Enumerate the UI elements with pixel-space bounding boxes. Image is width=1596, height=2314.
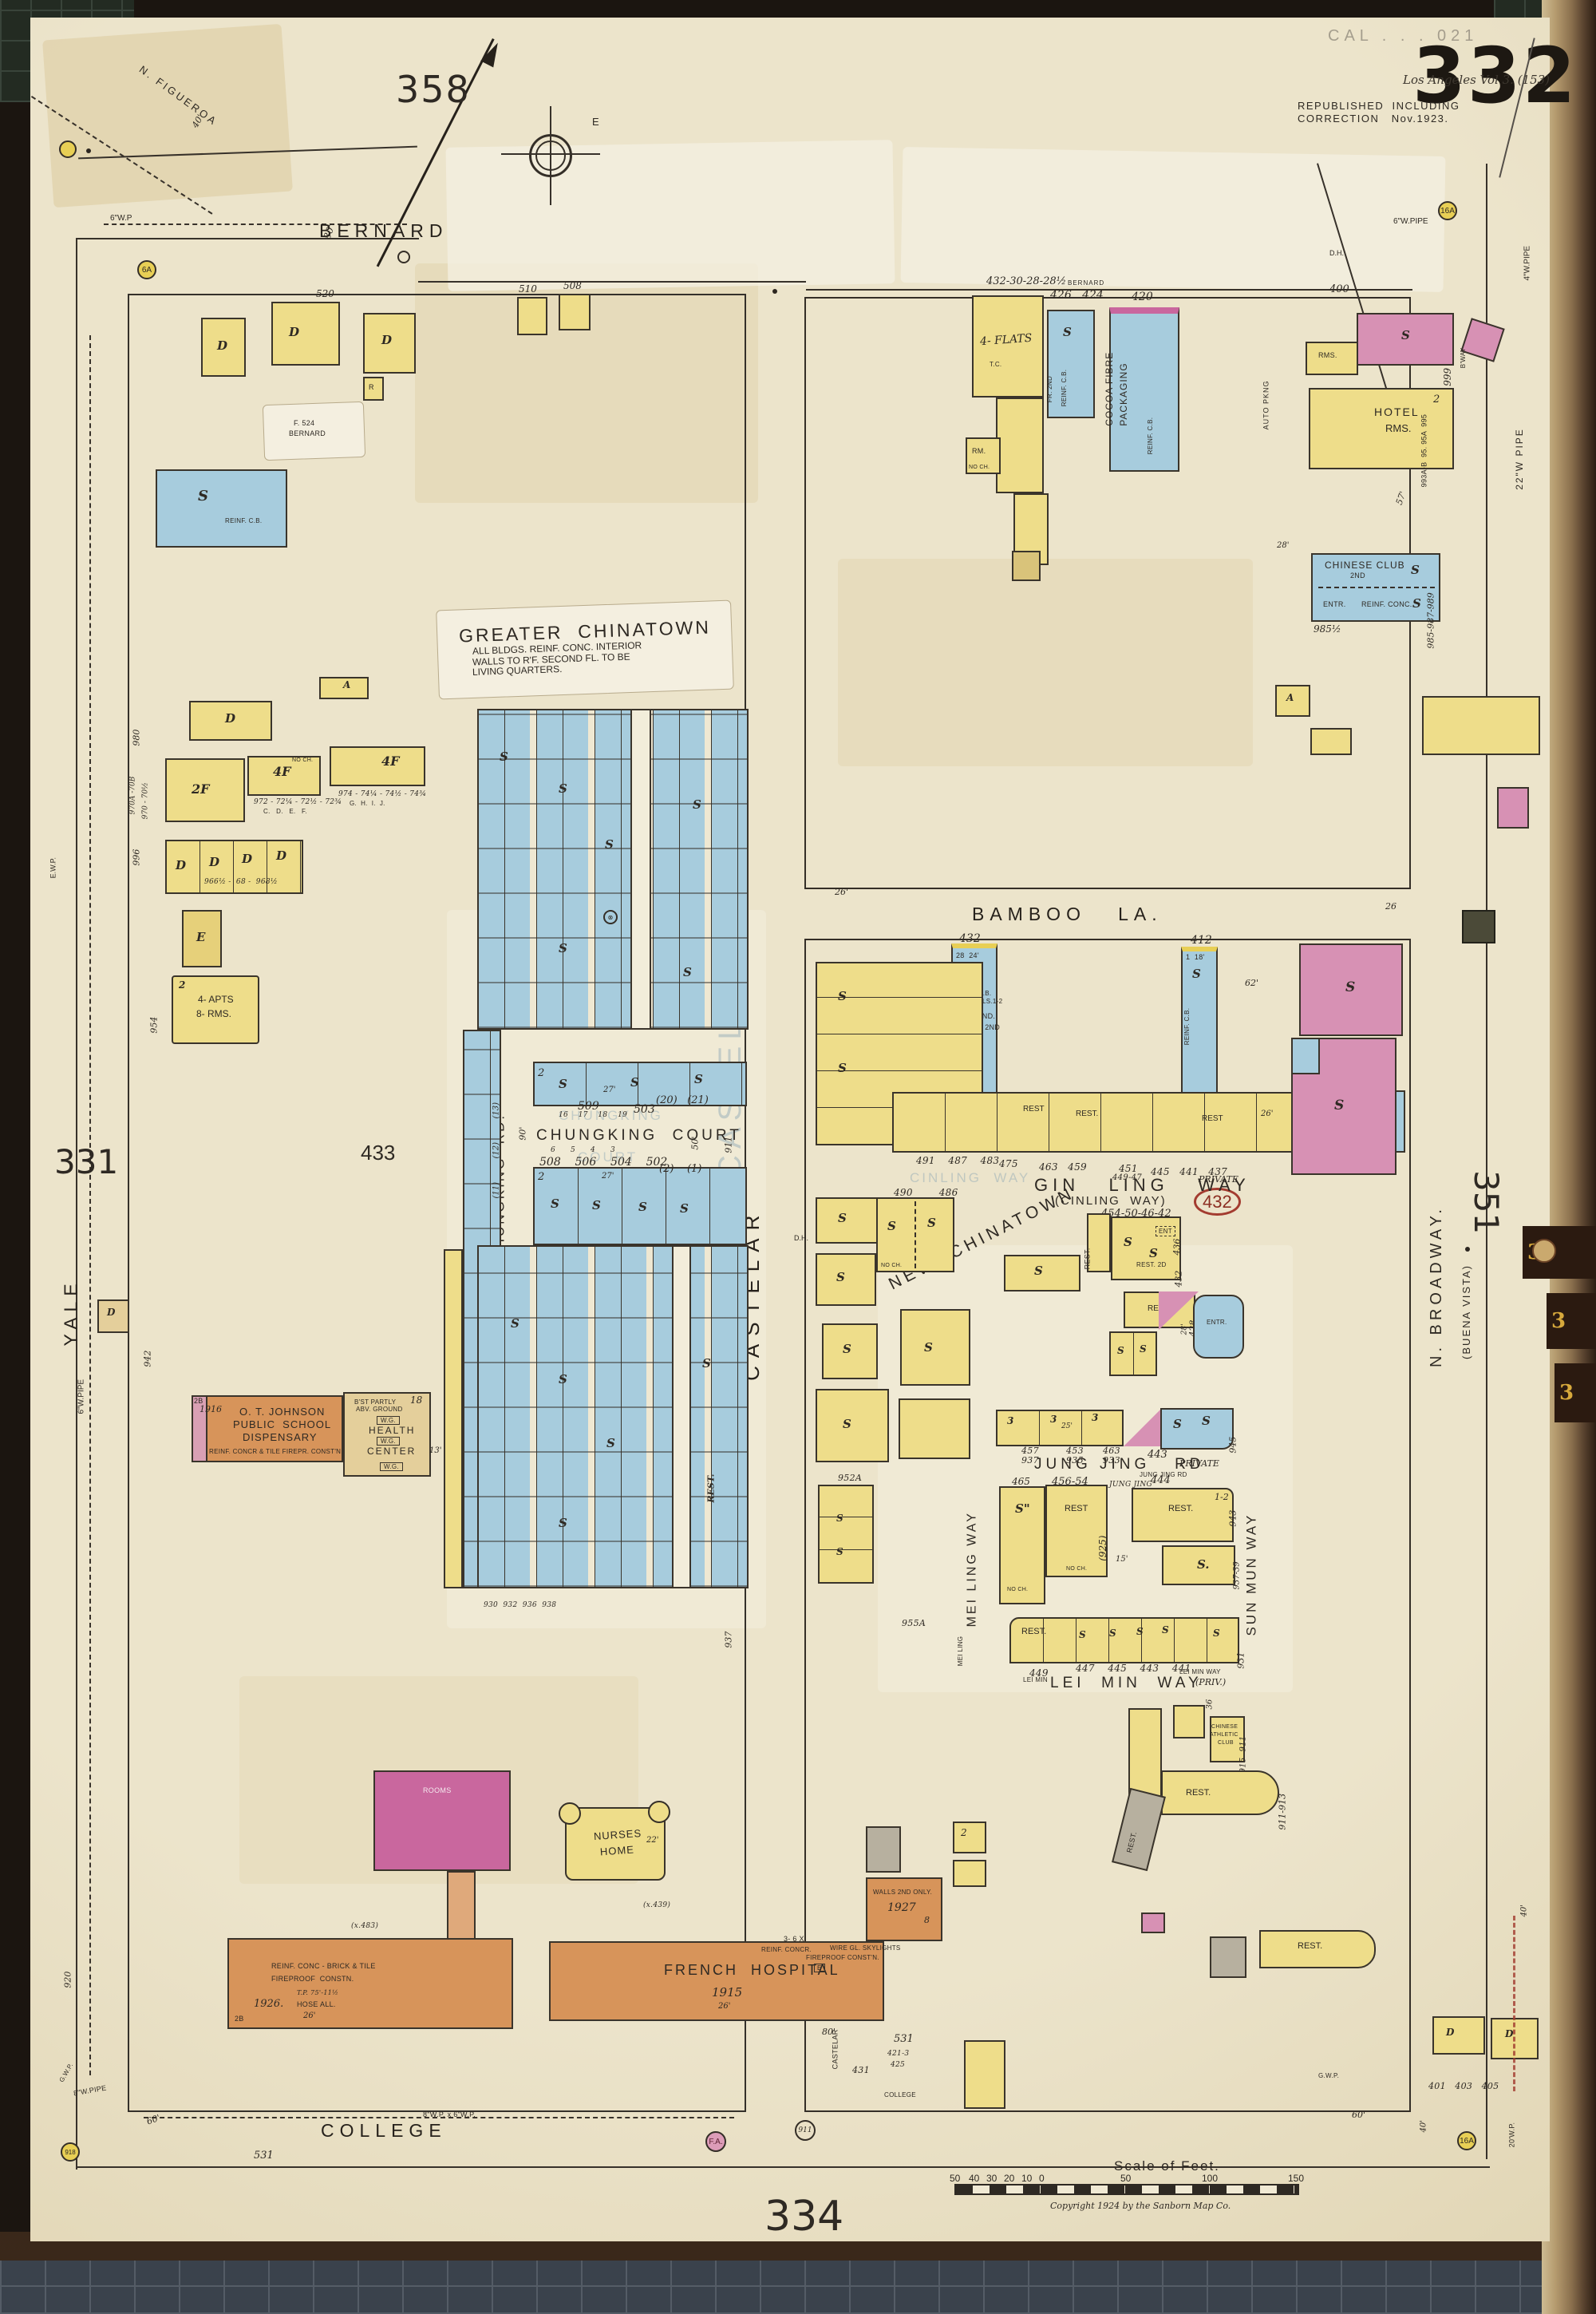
store-mark: S (559, 1517, 567, 1530)
cocoa-fibre-label2: PACKAGING (1119, 362, 1130, 425)
store-mark: S (198, 489, 208, 505)
fh-constr-2: FIREPROOF CONSTN. (271, 1975, 354, 1983)
dwelling-mark: D (381, 334, 392, 347)
street-broadway-alt: (BUENA VISTA) (1461, 1264, 1473, 1359)
yale-number: 970 - 70½ (142, 782, 150, 819)
court-number: 503 (634, 1103, 655, 1116)
three-mark: 3 (1050, 1414, 1057, 1426)
annex-1927-label: 1927 (887, 1901, 916, 1914)
scale-tick: 40 (969, 2173, 979, 2184)
addr-420: 420 (1132, 291, 1153, 303)
fh-tp: T.P. 75'-11½ (297, 1989, 338, 1996)
alley-gap-lower (672, 1247, 691, 1587)
dwelling-mark: D (176, 859, 186, 872)
bamboo-412-number: 412 (1191, 934, 1212, 947)
jj-925: (925) (1098, 1536, 1109, 1561)
jj-443: 443 (1148, 1450, 1167, 1462)
edge-tab-number: 3 (1551, 1309, 1566, 1333)
fh-26b: 26' (718, 2002, 730, 2011)
long-building (1422, 696, 1540, 755)
store-mark: S (702, 1357, 711, 1371)
store-mark: S (1334, 1098, 1344, 1114)
castelar-number-937: 937 (724, 1632, 734, 1648)
street-chungking-court: CHUNGKING COURT (536, 1127, 742, 1145)
fh-hose: HOSE ALL. (297, 2000, 336, 2008)
fh-1926: 1926. (254, 1999, 283, 2011)
rm-label: RM. (972, 447, 986, 455)
fr-2nd-note: FR. 2ND (1046, 376, 1053, 402)
school-name-3: DISPENSARY (243, 1432, 318, 1444)
four-flat (330, 746, 425, 786)
block-number-433: 433 (361, 1141, 395, 1165)
street-yale: YALE (61, 1278, 81, 1346)
pipe-22-broadway: 22"W PIPE (1515, 428, 1526, 490)
fabric-cloth-bottom (0, 2256, 1596, 2314)
fire-alarm-circle-16a-bottom: 16A (1457, 2131, 1476, 2150)
rest-2d-label: REST. 2D (1136, 1261, 1167, 1268)
noch-label: NO CH. (881, 1263, 902, 1269)
small-pink (1141, 1913, 1165, 1933)
gray-shed (866, 1826, 901, 1873)
survey-circle-911: 911 (795, 2120, 816, 2141)
gl-run-1: 491 487 483 (916, 1156, 999, 1167)
store-mark: S (1202, 1414, 1211, 1428)
store-mark: S (559, 782, 567, 796)
survey-dot (86, 148, 91, 153)
sh-mark: S" (1015, 1502, 1030, 1516)
small-building (1310, 728, 1352, 755)
two-mark: 2 (961, 1828, 967, 1839)
castelar-small (953, 1860, 986, 1887)
bamboo-432-number: 432 (959, 932, 981, 945)
bway-993: 993A-B 95. 95A 995 (1420, 414, 1428, 488)
three-mark: 3 (1007, 1416, 1013, 1427)
store-building-blue (156, 469, 287, 548)
street-line-college-south (76, 2166, 1490, 2168)
gl-463-459: 463 459 (1039, 1162, 1087, 1173)
structure-mark: R (369, 383, 374, 391)
bway-985-987: 985-987-989 (1426, 592, 1436, 648)
store-mark: S (694, 1073, 703, 1086)
hc-13: 13' (429, 1446, 441, 1456)
court-number: 508 506 504 502 (539, 1156, 667, 1169)
street-bernard-small: BERNARD (1068, 279, 1104, 287)
num-432: 432 (1174, 1271, 1184, 1288)
store-mark: S (551, 1197, 559, 1211)
scale-tick: 30 (986, 2173, 997, 2184)
addr-400: 400 (1329, 284, 1349, 296)
measure-80: 80' (822, 2027, 836, 2038)
store-mark: S (680, 1202, 689, 1216)
scale-bar (954, 2184, 1299, 2195)
stamp-square-dark (1462, 910, 1495, 943)
measure-60: 60' (1352, 2110, 1365, 2121)
edge-tab: 3 (1547, 1293, 1596, 1349)
x439-note: (x.439) (643, 1901, 670, 1909)
nurses-label-2: HOME (600, 1845, 635, 1859)
yale-number: 942 (143, 1351, 153, 1367)
two-mark: 2 (1433, 394, 1440, 406)
address-run-972: 972 - 72¼ - 72½ - 72¾ (254, 798, 342, 806)
small-dwelling (559, 294, 591, 330)
addr-432-30: 432-30-28-28½ (986, 276, 1066, 288)
col-431: 431 (852, 2066, 870, 2076)
store-mark: S (924, 1341, 933, 1355)
castelar-number-911: 911 (724, 1137, 734, 1153)
street-mei-ling-way: MEI LING WAY (966, 1511, 980, 1627)
jj-1-2: 1-2 (1215, 1493, 1229, 1503)
volume-stamp: Los Angeles Vol 3. (153) (1403, 73, 1550, 87)
rest-vertical: REST. (1084, 1248, 1092, 1269)
store-mark: S (500, 750, 508, 764)
rest-label: REST. (1168, 1504, 1193, 1514)
measure-26: 26' (1261, 1110, 1273, 1119)
rooms-label: ROOMS (423, 1786, 452, 1794)
bway-985half: 985½ (1314, 624, 1341, 635)
cast-955A: 955A (902, 1619, 926, 1629)
scale-tick: 150 (1288, 2173, 1304, 2184)
court-number: (2) (1) (659, 1164, 701, 1176)
fire-alarm-circle-fa: F.A. (705, 2131, 726, 2152)
measure-62: 62' (1245, 979, 1258, 989)
measure-26-left: 26' (835, 888, 848, 898)
measure-22: 22' (646, 1836, 658, 1845)
store-mark: S (1063, 326, 1072, 339)
s2-mark: S. (1197, 1558, 1210, 1572)
street-college-small: COLLEGE (884, 2091, 916, 2098)
col-425: 425 (891, 2061, 905, 2069)
chungking-upper-rows (477, 709, 749, 1030)
bamboo-412-dims: 1 18' (1186, 953, 1205, 961)
store-mark: S (605, 838, 614, 852)
num-920: 920 (63, 1972, 73, 1988)
club-entr: ENTR. (1323, 600, 1346, 608)
adjacent-sheet-334: 334 (764, 2193, 843, 2241)
court-number: (11) (492, 1182, 502, 1199)
no-opening-note: NO CH. (292, 757, 313, 764)
gin-ling-north-row (892, 1092, 1310, 1153)
red-stamp-marks (1513, 1916, 1515, 2091)
flat-mark: A (343, 680, 350, 691)
house-number: 510 (519, 284, 537, 295)
store-mark: S (683, 966, 692, 979)
street-line-bernard-north (806, 289, 1412, 291)
court-number: 16 17 18 19 (559, 1111, 627, 1119)
lm-449: 449 (1029, 1668, 1049, 1679)
wg-box: W.G. (377, 1437, 400, 1446)
street-college: COLLEGE (321, 2120, 447, 2141)
fire-alarm-label: 16A (1460, 2137, 1474, 2146)
jj-937-39: 937-39 (1233, 1561, 1242, 1589)
store-mark: S (838, 1212, 847, 1225)
court-number: 6 5 4 3 (551, 1146, 615, 1154)
chinese-club-label: CHINESE CLUB (1325, 560, 1405, 572)
small-shop (1173, 1705, 1205, 1738)
measure-27: 27' (602, 1172, 614, 1181)
shop-small (1109, 1331, 1157, 1376)
scale-tick: 100 (1202, 2173, 1218, 2184)
bway-label: B'WAY (1460, 347, 1467, 368)
gl-445-441: 445 441 437 (1151, 1167, 1227, 1178)
store-mark: S (511, 1317, 519, 1331)
edge-tab: 3 (1555, 1363, 1596, 1422)
dwelling-e-mark: E (196, 931, 205, 944)
club-reinf: REINF. CONC. (1361, 600, 1412, 608)
yellow-strip (444, 1249, 463, 1588)
annex-36x: 3- 6 X (784, 1935, 804, 1943)
scale-title: Scale of Feet. (1114, 2158, 1220, 2174)
street-line-bernard-north (418, 281, 806, 283)
nurses-turret (559, 1802, 581, 1825)
store-mark: S (1162, 1625, 1169, 1636)
store-mark: S (1109, 1628, 1116, 1640)
correction-note: CORRECTION Nov.1923. (1298, 113, 1449, 125)
rest-label: REST (1023, 1105, 1045, 1114)
address-run-974: 974 - 74¼ - 74½ - 74¾ (338, 790, 426, 798)
store-mark: S (1034, 1264, 1043, 1278)
measure-28: 28' (1277, 541, 1289, 551)
store-mark: S (836, 1271, 845, 1284)
lei-min-north-row (1009, 1617, 1239, 1663)
adjacent-sheet-351: 351 (1467, 1170, 1505, 1234)
dwelling-mark: D (276, 849, 286, 863)
store-mark: S (630, 1076, 639, 1090)
store-mark: S (559, 942, 567, 955)
x483-note: (x.483) (351, 1922, 378, 1930)
store-mark: S (693, 798, 701, 812)
store-mark: S (559, 1078, 567, 1091)
survey-circle-label: 911 (798, 2126, 812, 2134)
fh-constr-1: REINF. CONC - BRICK & TILE (271, 1962, 376, 1970)
store-mark: S (838, 1062, 847, 1075)
symbol-circle: ⊗ (603, 910, 618, 924)
rest-mark: REST. (706, 1474, 717, 1503)
house-number: 520 (316, 289, 334, 300)
fh-26: 26' (303, 2011, 315, 2021)
fh-2b: 2B (235, 2015, 244, 2023)
rest-label: REST. (1186, 1788, 1211, 1798)
dwelling-mark: D (225, 712, 235, 726)
survey-circle (397, 251, 410, 263)
interior-dash (915, 1201, 916, 1268)
jung-jing-444: 444 (1151, 1475, 1171, 1487)
annex-fireproof: FIREPROOF CONST'N. (806, 1954, 879, 1961)
rest-rounded-building (1161, 1770, 1279, 1815)
measure-26-right: 26 (1385, 902, 1396, 912)
jj-937: 937 (1021, 1456, 1039, 1466)
mei-ling-block-shop (900, 1309, 970, 1386)
alley-gap (630, 710, 651, 1028)
scale-tick: 0 (1039, 2173, 1045, 2184)
store-mark: S (1411, 564, 1420, 577)
pipe-4-top: 4"W.PIPE (1523, 246, 1533, 281)
lm-931: 931 (1236, 1652, 1246, 1669)
cac-1: CHINESE (1211, 1724, 1238, 1731)
lm-915-911: 915 911 (1239, 1736, 1249, 1774)
fire-alarm-label: F.A. (709, 2138, 722, 2146)
annex-8: 8 (924, 1916, 930, 1926)
store-mark: S (1345, 980, 1355, 996)
hc-health: HEALTH (369, 1426, 415, 1437)
dwelling-mark: D (1446, 2027, 1454, 2039)
street-broadway: N. BROADWAY. (1428, 1205, 1446, 1367)
pasted-slip (901, 147, 1446, 292)
page-stack-right (1542, 0, 1596, 2314)
apts-rms-label: 8- RMS. (196, 1009, 231, 1020)
street-line-yale-west (76, 238, 77, 2170)
store-mark: S (836, 1547, 843, 1558)
jj-blue-corner (1160, 1408, 1234, 1450)
store-mark: S (1117, 1346, 1124, 1357)
hotel-rms-label: RMS. (1385, 423, 1412, 435)
mei-ling-block-shop2 (899, 1398, 970, 1459)
survey-dot (772, 289, 777, 294)
hospital-connector (447, 1871, 476, 1940)
dwelling-mark: D (289, 326, 299, 339)
entr-label: ENTR. (1207, 1319, 1227, 1326)
two-mark: 2 (538, 1068, 544, 1080)
store-mark: S (1124, 1236, 1132, 1249)
cinling-ghost: CINLING WAY (910, 1170, 1030, 1186)
school-name-1: O. T. JOHNSON (239, 1406, 325, 1418)
store-mark: S (1213, 1628, 1220, 1640)
noch-label: NO CH. (1066, 1566, 1087, 1572)
corner-shop-L (964, 2040, 1005, 2109)
hotel-building (1309, 388, 1454, 469)
gwp-label: G.W.P. (1318, 2072, 1339, 2079)
school-name-2: PUBLIC SCHOOL (233, 1419, 331, 1431)
reinf-cb-note: REINF. C.B. (1061, 370, 1068, 406)
address-run-974-letters: G. H. I. J. (350, 800, 385, 807)
yale-number: 980 (132, 730, 142, 746)
col-531a: 531 (894, 2034, 914, 2046)
stub-building (1012, 551, 1041, 581)
jj-south-rest (1045, 1485, 1108, 1577)
rms-label: RMS. (1318, 351, 1337, 359)
jung-jing-private: PRIVATE (1179, 1459, 1219, 1469)
col-531b: 531 (254, 2150, 274, 2162)
hc-18: 18 (410, 1395, 422, 1406)
scale-tick: 10 (1021, 2173, 1032, 2184)
survey-dot (1465, 1247, 1470, 1252)
court-number: (13) (492, 1102, 502, 1119)
gl-449-47: 449-47 (1112, 1173, 1142, 1183)
dwelling-mark: D (209, 856, 219, 869)
pipe-6-yale: 6"W.PIPE (77, 1379, 87, 1414)
store-mark: S (1140, 1344, 1147, 1355)
edge-tab-number: 3 (1559, 1381, 1574, 1405)
flats-rear-wing (996, 398, 1044, 493)
store-mark: S (1173, 1418, 1182, 1431)
street-bernard: BERNARD (319, 220, 448, 241)
binder-grommet (1532, 1239, 1556, 1263)
court-number: (20) (21) (656, 1095, 709, 1107)
pipe-8x6-college: 8"W.P. x 6"W.P. (423, 2110, 476, 2118)
castelar-small (953, 1822, 986, 1853)
lm-run: 447 445 443 441 (1076, 1663, 1191, 1675)
club-interior-dash (1318, 587, 1435, 588)
yale-number: 996 (132, 849, 142, 866)
broadway-house (1432, 2016, 1485, 2055)
hc-basement-2: ABV. GROUND (356, 1406, 403, 1413)
address-run-966: 966½ - 68 - 968½ (204, 878, 278, 886)
annex-walls-note: WALLS 2ND ONLY. (873, 1889, 932, 1896)
store-mark: S (1149, 1247, 1158, 1260)
nurses-turret (648, 1801, 670, 1823)
dwelling-mark: D (1505, 2029, 1513, 2040)
school-constr-note: REINF. CONCR & TILE FIREPR. CONST'N (209, 1448, 341, 1455)
hc-basement-1: B'ST PARTLY (354, 1398, 396, 1406)
cocoa-fibre-label1: COCOA FIBRE (1104, 352, 1116, 426)
scale-tick: 50 (950, 2173, 960, 2184)
dwelling-mark: D (242, 852, 252, 866)
dwelling-mark: D (217, 339, 227, 353)
house-number: 508 (563, 281, 582, 292)
chinese-club-2nd: 2ND (1350, 572, 1365, 579)
four-flat-mark: 4F (273, 765, 291, 779)
store-mark: S (1079, 1630, 1086, 1641)
street-sun-mun-way: SUN MUN WAY (1243, 1513, 1259, 1636)
ent-box: ENT (1156, 1226, 1175, 1236)
adjacent-sheet-331: 331 (54, 1143, 118, 1181)
four-flat-mark: 4F (381, 754, 400, 769)
rooms-annex-pink (373, 1770, 511, 1871)
scanned-map-page: { "page": { "sheet": "332", "vol_stamp":… (0, 0, 1596, 2314)
three-mark: 3 (1092, 1413, 1098, 1424)
address-run-930: 930 932 936 938 (484, 1601, 556, 1609)
rest-label: REST (1065, 1504, 1088, 1514)
store-mark: S (559, 1373, 567, 1386)
dead-hydrant: D.H. (794, 1234, 808, 1242)
a-mark: A (1286, 693, 1294, 704)
store-mark: S (1192, 967, 1201, 981)
yale-number: 970A -70B (129, 777, 137, 815)
bamboo-432-dims: 28 24' (956, 951, 979, 959)
jj-943: 943 (1228, 1510, 1238, 1527)
address-run-972-letters: C. D. E. F. (263, 808, 307, 815)
store-mark: S (606, 1437, 615, 1450)
measure-90: 90' (518, 1127, 528, 1141)
noch-label: NO CH. (969, 465, 990, 471)
french-hospital-east-wing (549, 1941, 884, 2021)
cocoa-reinf-note: REINF. C.B. (1147, 417, 1154, 454)
wg-box: W.G. (377, 1416, 400, 1425)
store-mark: S (638, 1201, 647, 1214)
castelar-shop-group (818, 1485, 874, 1584)
bway-999: 999 (1443, 368, 1454, 386)
store-mark: S (592, 1199, 601, 1212)
castelar-shop (816, 1197, 878, 1244)
measure-36: 36 (1206, 1699, 1215, 1710)
rest-label: REST. (1021, 1627, 1046, 1637)
measure-27: 27' (603, 1086, 615, 1095)
store-mark: S (836, 1513, 843, 1525)
store-mark: S (927, 1216, 936, 1230)
wg-box: W.G. (380, 1462, 403, 1471)
hotel-label: HOTEL (1374, 405, 1420, 418)
ewp-yale: E.W.P. (49, 857, 57, 878)
store-mark: S (1401, 329, 1410, 342)
gray-outbuilding (1210, 1936, 1246, 1978)
store-mark: S (843, 1418, 851, 1431)
school-2b: 2B (194, 1397, 203, 1405)
jj-north-row (996, 1410, 1124, 1446)
fire-alarm-label: 16A (1440, 207, 1455, 216)
rest-label: REST (1202, 1114, 1223, 1124)
lm-911-913: 911-913 (1278, 1794, 1288, 1830)
slip-524-number: F. 524 (294, 419, 314, 427)
measure-40: 40' (1520, 1905, 1530, 1916)
